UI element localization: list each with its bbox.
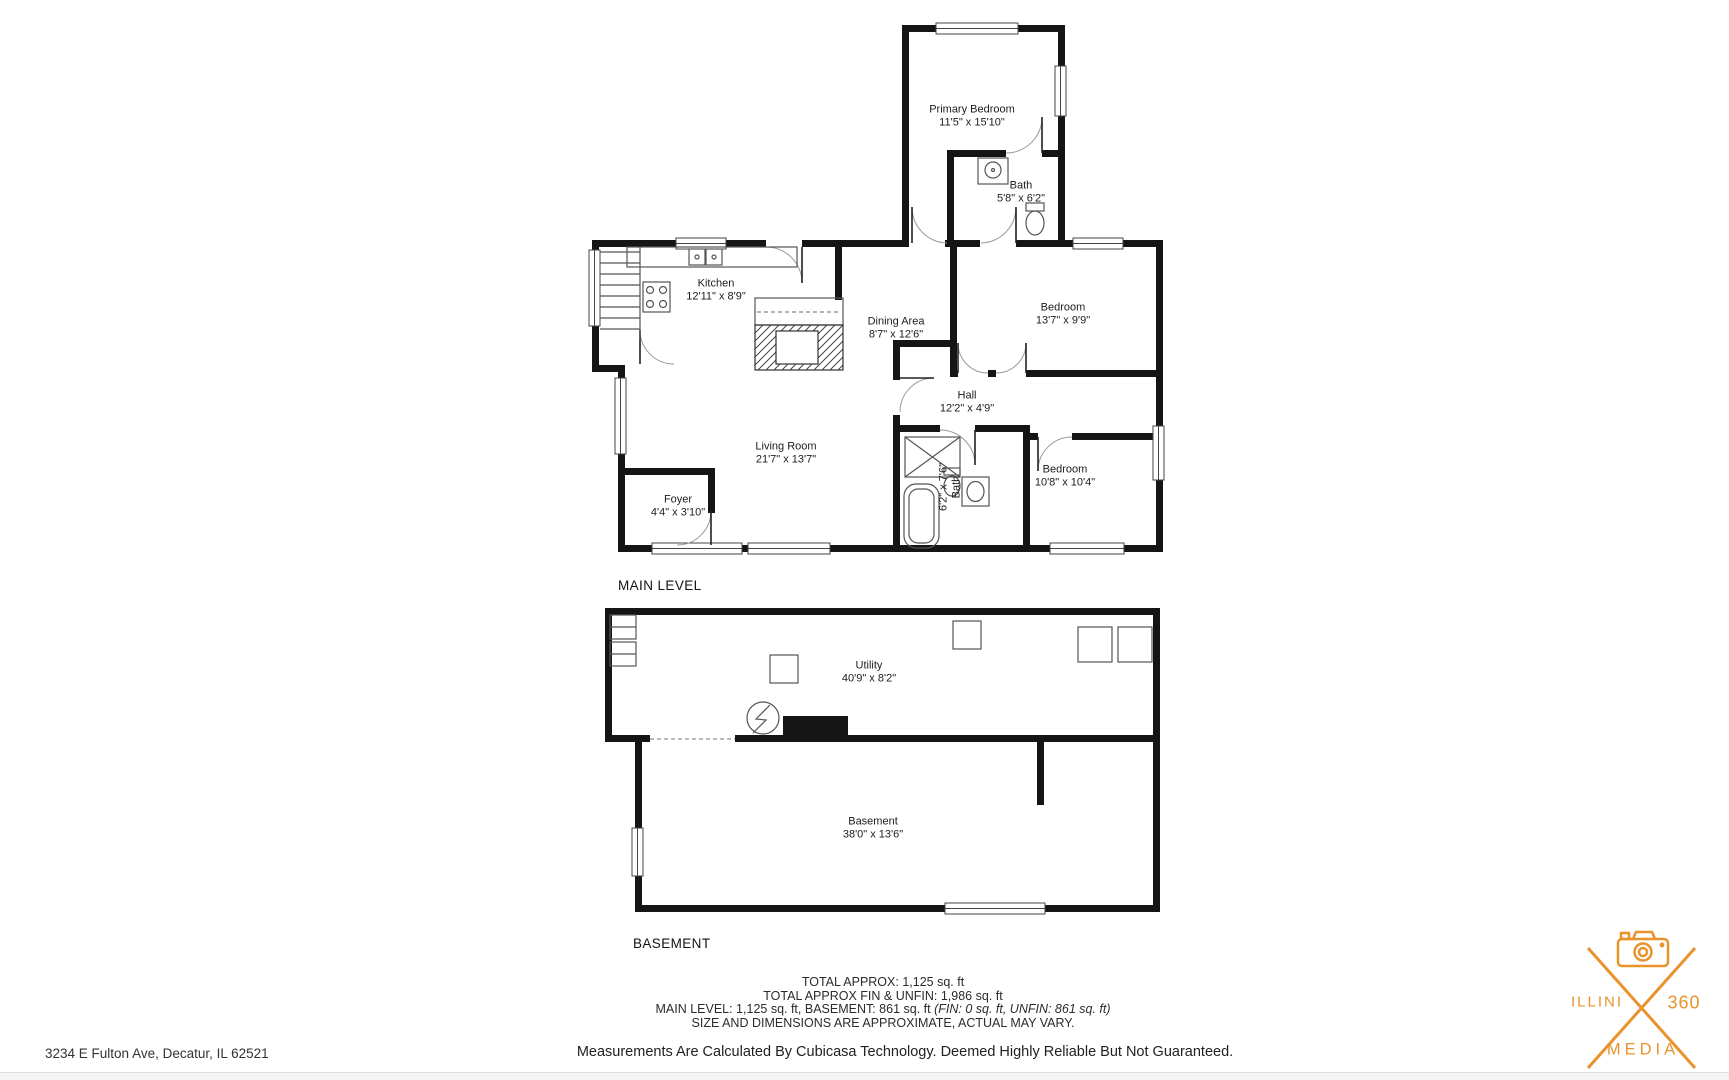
sump-pump-icon	[747, 702, 779, 734]
logo-name-left: ILLINI	[1571, 994, 1623, 1011]
property-address: 3234 E Fulton Ave, Decatur, IL 62521	[45, 1046, 269, 1061]
area-summary: TOTAL APPROX: 1,125 sq. ft TOTAL APPROX …	[655, 976, 1110, 1030]
room-name: Foyer	[651, 494, 705, 507]
stove-icon	[643, 282, 670, 312]
measurement-disclaimer: Measurements Are Calculated By Cubicasa …	[577, 1044, 1233, 1060]
bathtub-icon	[904, 484, 939, 548]
room-label-bath-2: 6'2" x 7'6" Bath	[938, 463, 963, 511]
room-name: Dining Area	[868, 316, 925, 329]
room-name: Basement	[843, 816, 903, 829]
room-name: Living Room	[755, 441, 816, 454]
room-dims: 4'4" x 3'10"	[651, 506, 705, 519]
room-label-kitchen: Kitchen 12'11" x 8'9"	[686, 278, 746, 303]
room-dims: 11'5" x 15'10"	[929, 116, 1015, 129]
room-dims: 10'8" x 10'4"	[1035, 476, 1095, 489]
room-dims: 13'7" x 9'9"	[1036, 314, 1090, 327]
illini-360-media-logo: ILLINI 360 MEDIA	[1570, 925, 1729, 1075]
basement-section-label: BASEMENT	[633, 936, 710, 951]
appliance-boxes	[770, 621, 1152, 683]
room-dims: 12'2" x 4'9"	[940, 402, 994, 415]
room-name: Bath	[950, 463, 963, 511]
camera-icon	[1618, 932, 1668, 966]
kitchen-island	[755, 298, 843, 370]
summary-levels-italic: (FIN: 0 sq. ft, UNFIN: 861 sq. ft)	[934, 1002, 1110, 1016]
bath-sink-icon	[962, 477, 989, 506]
floor-plan-drawing	[0, 0, 1729, 1080]
primary-bath-toilet-icon	[1026, 203, 1044, 235]
logo-name-bottom: MEDIA	[1607, 1041, 1679, 1060]
basement-walls	[605, 608, 1160, 912]
room-label-utility: Utility 40'9" x 8'2"	[842, 660, 896, 685]
main-level-fixtures	[600, 158, 1044, 548]
room-name: Bath	[997, 180, 1045, 193]
room-label-primary-bedroom: Primary Bedroom 11'5" x 15'10"	[929, 104, 1015, 129]
summary-line-levels: MAIN LEVEL: 1,125 sq. ft, BASEMENT: 861 …	[655, 1003, 1110, 1017]
room-label-dining-area: Dining Area 8'7" x 12'6"	[868, 316, 925, 341]
kitchen-counter	[627, 247, 797, 267]
summary-line-total: TOTAL APPROX: 1,125 sq. ft	[655, 976, 1110, 990]
summary-line-approximate: SIZE AND DIMENSIONS ARE APPROXIMATE, ACT…	[655, 1017, 1110, 1031]
room-dims: 21'7" x 13'7"	[755, 453, 816, 466]
basement-stairs	[610, 615, 636, 666]
room-label-basement: Basement 38'0" x 13'6"	[843, 816, 903, 841]
summary-levels-regular: MAIN LEVEL: 1,125 sq. ft, BASEMENT: 861 …	[655, 1002, 934, 1016]
room-dims: 40'9" x 8'2"	[842, 672, 896, 685]
room-label-bedroom-2: Bedroom 10'8" x 10'4"	[1035, 464, 1095, 489]
logo-name-right: 360	[1667, 993, 1700, 1014]
floor-plan-page: Primary Bedroom 11'5" x 15'10" Bath 5'8"…	[0, 0, 1729, 1080]
room-label-hall: Hall 12'2" x 4'9"	[940, 390, 994, 415]
room-name: Bedroom	[1036, 302, 1090, 315]
room-name: Kitchen	[686, 278, 746, 291]
room-name: Primary Bedroom	[929, 104, 1015, 117]
room-name: Bedroom	[1035, 464, 1095, 477]
room-dims: 38'0" x 13'6"	[843, 828, 903, 841]
room-name: Hall	[940, 390, 994, 403]
room-dims: 12'11" x 8'9"	[686, 290, 746, 303]
room-dims: 8'7" x 12'6"	[868, 328, 925, 341]
room-dims: 5'8" x 6'2"	[997, 192, 1045, 205]
main-level-section-label: MAIN LEVEL	[618, 578, 702, 593]
basement-windows	[632, 734, 1045, 914]
staircase	[600, 247, 640, 340]
room-name: Utility	[842, 660, 896, 673]
room-label-primary-bath: Bath 5'8" x 6'2"	[997, 180, 1045, 205]
room-label-living-room: Living Room 21'7" x 13'7"	[755, 441, 816, 466]
room-label-bedroom-1: Bedroom 13'7" x 9'9"	[1036, 302, 1090, 327]
room-label-foyer: Foyer 4'4" x 3'10"	[651, 494, 705, 519]
summary-line-fin-unfin: TOTAL APPROX FIN & UNFIN: 1,986 sq. ft	[655, 990, 1110, 1004]
room-dims: 6'2" x 7'6"	[938, 463, 951, 511]
footer-divider	[0, 1072, 1729, 1080]
